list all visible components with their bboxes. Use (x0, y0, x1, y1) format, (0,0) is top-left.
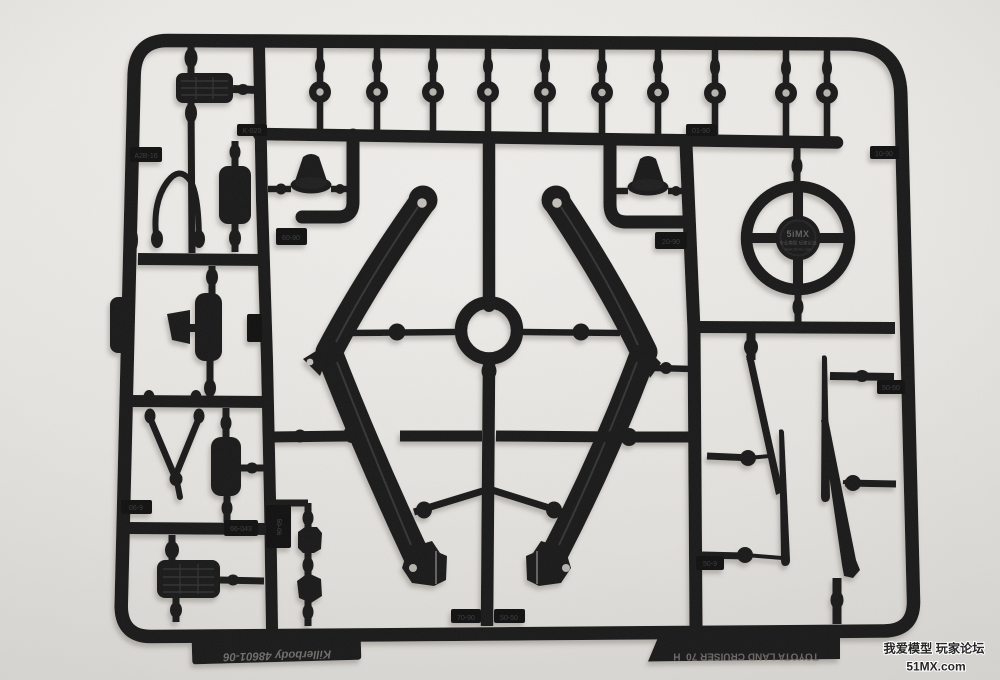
svg-text:51MX.com: 51MX.com (906, 660, 965, 674)
svg-text:我爱模型 玩家论坛: 我爱模型 玩家论坛 (884, 641, 986, 656)
